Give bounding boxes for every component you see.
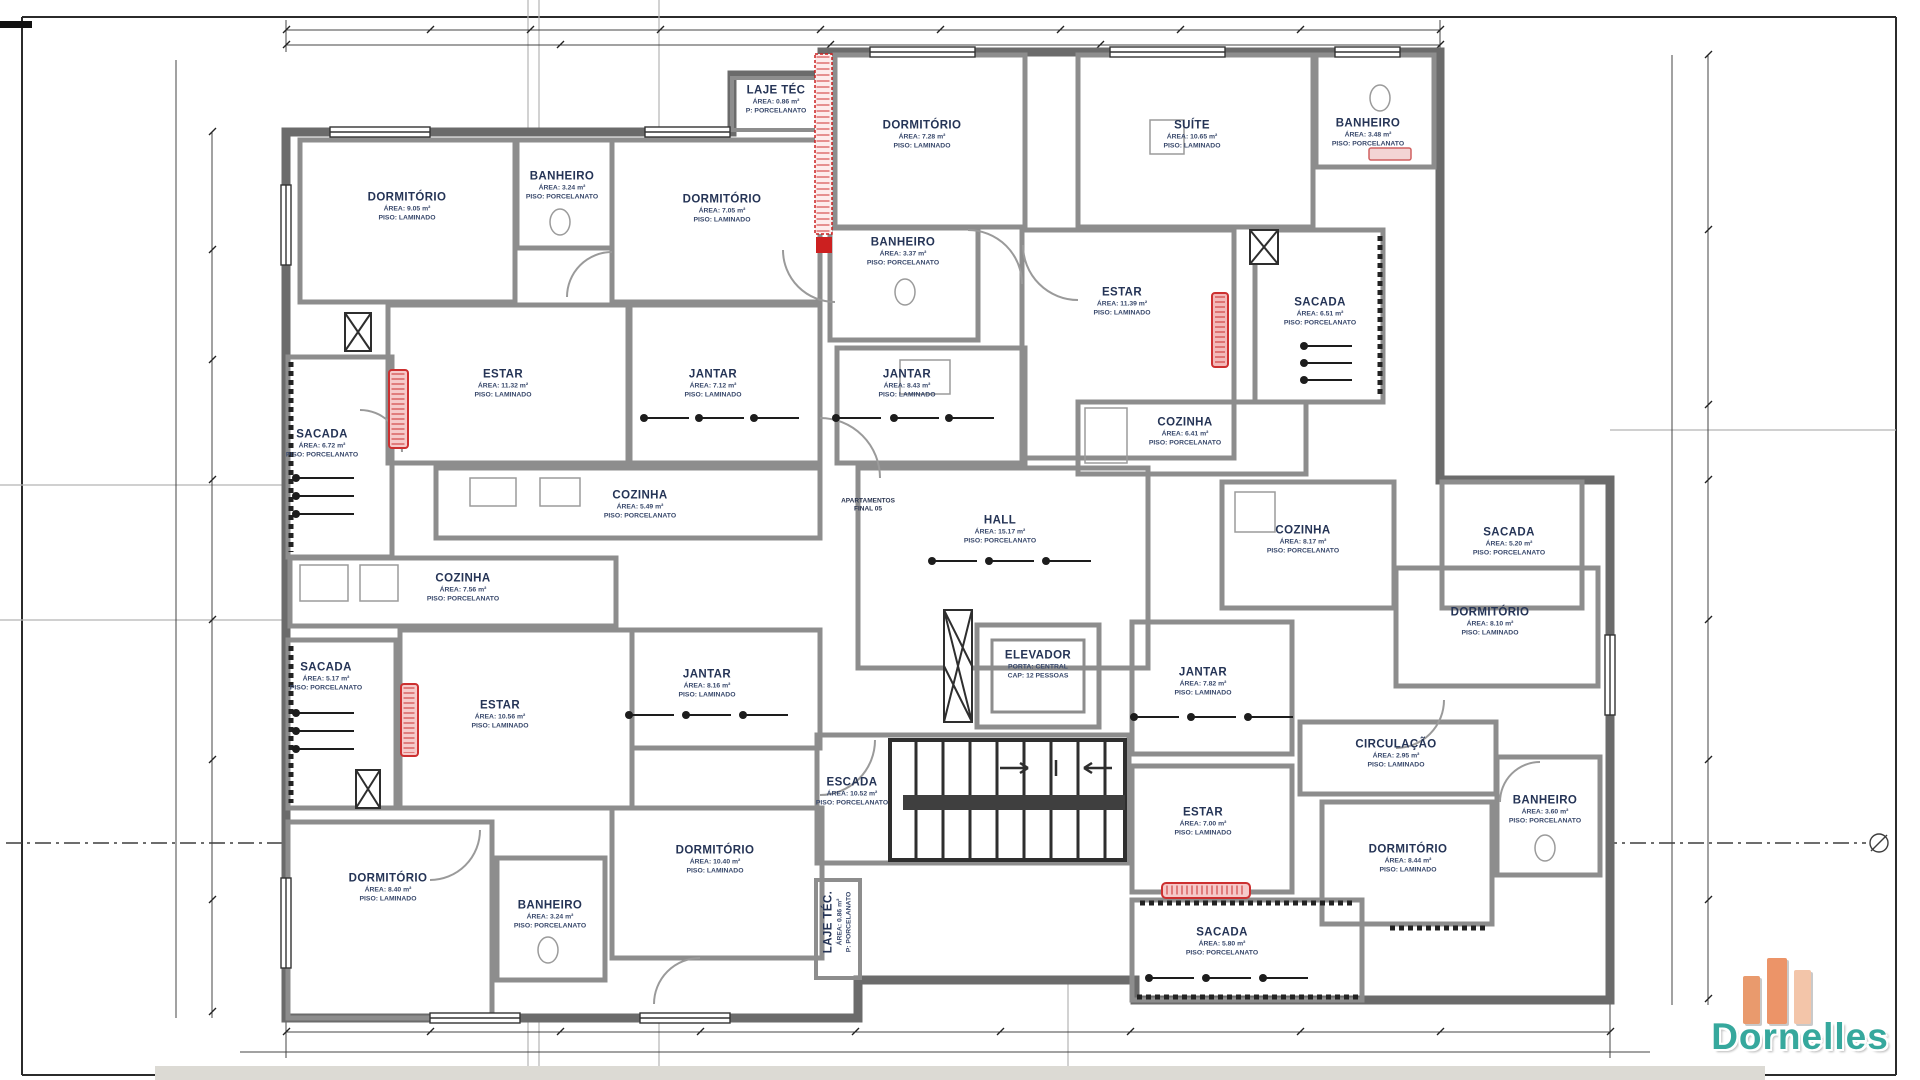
room-name: DORMITÓRIO <box>1369 843 1448 858</box>
room-area: ÁREA: 15.17 m² <box>964 529 1036 538</box>
room-label: SACADAÁREA: 5.80 m²PISO: PORCELANATO <box>1186 926 1258 959</box>
room-area: ÁREA: 8.16 m² <box>678 683 735 692</box>
room-floor: PISO: LAMINADO <box>1451 629 1530 638</box>
room-area: ÁREA: 6.72 m² <box>286 443 358 452</box>
floor-plan-sheet: DORMITÓRIOÁREA: 9.05 m²PISO: LAMINADOBAN… <box>0 0 1920 1080</box>
room-label: ESTARÁREA: 11.39 m²PISO: LAMINADO <box>1093 286 1150 319</box>
apartment-annotation-line2: FINAL 05 <box>841 506 895 514</box>
company-logo: Dornelles <box>1695 948 1905 1063</box>
room-label: JANTARÁREA: 7.82 m²PISO: LAMINADO <box>1174 666 1231 699</box>
room-label: ESTARÁREA: 11.32 m²PISO: LAMINADO <box>474 368 531 401</box>
room-area: ÁREA: 3.24 m² <box>514 914 586 923</box>
room-floor: PISO: LAMINADO <box>349 895 428 904</box>
room-floor: PISO: PORCELANATO <box>1473 549 1545 558</box>
room-label: DORMITÓRIOÁREA: 7.28 m²PISO: LAMINADO <box>883 119 962 152</box>
room-name: SACADA <box>286 428 358 443</box>
room-floor: PISO: LAMINADO <box>1174 689 1231 698</box>
room-floor: PISO: PORCELANATO <box>964 537 1036 546</box>
room-label: BANHEIROÁREA: 3.60 m²PISO: PORCELANATO <box>1509 794 1581 827</box>
room-name: DORMITÓRIO <box>349 872 428 887</box>
room-floor: P: PORCELANATO <box>746 107 807 116</box>
room-area: ÁREA: 5.49 m² <box>604 504 676 513</box>
room-name: HALL <box>964 514 1036 529</box>
room-name: SACADA <box>290 661 362 676</box>
room-area: ÁREA: 7.00 m² <box>1174 821 1231 830</box>
room-label: DORMITÓRIOÁREA: 8.44 m²PISO: LAMINADO <box>1369 843 1448 876</box>
floor-plan-linework <box>0 0 1920 1080</box>
room-name: SACADA <box>1473 526 1545 541</box>
room-floor: PISO: LAMINADO <box>1369 866 1448 875</box>
room-label: DORMITÓRIOÁREA: 9.05 m²PISO: LAMINADO <box>368 191 447 224</box>
room-floor: PISO: LAMINADO <box>1174 829 1231 838</box>
room-floor: PISO: PORCELANATO <box>1509 817 1581 826</box>
room-label: JANTARÁREA: 8.43 m²PISO: LAMINADO <box>878 368 935 401</box>
room-label: ELEVADORPORTA: CENTRALCAP: 12 PESSOAS <box>1005 649 1071 682</box>
room-area: ÁREA: 5.20 m² <box>1473 541 1545 550</box>
room-name: DORMITÓRIO <box>676 844 755 859</box>
room-floor: PISO: PORCELANATO <box>1267 547 1339 556</box>
room-label: DORMITÓRIOÁREA: 7.05 m²PISO: LAMINADO <box>683 193 762 226</box>
room-area: ÁREA: 3.24 m² <box>526 185 598 194</box>
room-name: COZINHA <box>1149 416 1221 431</box>
room-label: DORMITÓRIOÁREA: 8.40 m²PISO: LAMINADO <box>349 872 428 905</box>
room-name: COZINHA <box>427 572 499 587</box>
room-floor: PISO: LAMINADO <box>368 214 447 223</box>
room-area: ÁREA: 3.60 m² <box>1509 809 1581 818</box>
room-label: DORMITÓRIOÁREA: 8.10 m²PISO: LAMINADO <box>1451 606 1530 639</box>
room-area: ÁREA: 10.65 m² <box>1163 134 1220 143</box>
room-name: LAJE TÉC. <box>822 891 837 953</box>
room-name: BANHEIRO <box>526 170 598 185</box>
room-label: SACADAÁREA: 6.51 m²PISO: PORCELANATO <box>1284 296 1356 329</box>
room-floor: PISO: PORCELANATO <box>1149 439 1221 448</box>
frame-corner-mark <box>0 21 32 28</box>
room-floor: PISO: PORCELANATO <box>514 922 586 931</box>
room-name: SUÍTE <box>1163 119 1220 134</box>
room-floor: PISO: LAMINADO <box>684 391 741 400</box>
room-area: ÁREA: 8.40 m² <box>349 887 428 896</box>
room-area: ÁREA: 7.82 m² <box>1174 681 1231 690</box>
room-name: JANTAR <box>1174 666 1231 681</box>
room-name: ESTAR <box>474 368 531 383</box>
room-floor: PISO: LAMINADO <box>474 391 531 400</box>
room-area: ÁREA: 7.05 m² <box>683 208 762 217</box>
room-label: HALLÁREA: 15.17 m²PISO: PORCELANATO <box>964 514 1036 547</box>
room-name: ESTAR <box>1093 286 1150 301</box>
room-name: SACADA <box>1284 296 1356 311</box>
room-floor: CAP: 12 PESSOAS <box>1005 672 1071 681</box>
room-label: COZINHAÁREA: 6.41 m²PISO: PORCELANATO <box>1149 416 1221 449</box>
room-area: ÁREA: 3.48 m² <box>1332 132 1404 141</box>
room-label: BANHEIROÁREA: 3.24 m²PISO: PORCELANATO <box>526 170 598 203</box>
room-name: BANHEIRO <box>867 236 939 251</box>
room-floor: PISO: PORCELANATO <box>1186 949 1258 958</box>
room-floor: PISO: PORCELANATO <box>604 512 676 521</box>
room-label: BANHEIROÁREA: 3.48 m²PISO: PORCELANATO <box>1332 117 1404 150</box>
room-floor: PISO: PORCELANATO <box>286 451 358 460</box>
room-name: JANTAR <box>878 368 935 383</box>
apartment-annotation-line1: APARTAMENTOS <box>841 498 895 506</box>
room-area: ÁREA: 11.39 m² <box>1093 301 1150 310</box>
room-name: BANHEIRO <box>1332 117 1404 132</box>
room-label: ESTARÁREA: 10.56 m²PISO: LAMINADO <box>471 699 528 732</box>
room-area: ÁREA: 10.52 m² <box>816 791 888 800</box>
room-floor: PISO: PORCELANATO <box>1332 140 1404 149</box>
room-area: ÁREA: 2.95 m² <box>1355 753 1436 762</box>
room-floor: PISO: LAMINADO <box>883 142 962 151</box>
room-label: CIRCULAÇÃOÁREA: 2.95 m²PISO: LAMINADO <box>1355 738 1436 771</box>
room-area: ÁREA: 5.80 m² <box>1186 941 1258 950</box>
room-floor: PISO: PORCELANATO <box>427 595 499 604</box>
room-floor: PISO: PORCELANATO <box>526 193 598 202</box>
room-area: ÁREA: 8.10 m² <box>1451 621 1530 630</box>
room-area: ÁREA: 8.44 m² <box>1369 858 1448 867</box>
room-label: COZINHAÁREA: 5.49 m²PISO: PORCELANATO <box>604 489 676 522</box>
room-floor: PISO: LAMINADO <box>676 867 755 876</box>
room-label: ESCADAÁREA: 10.52 m²PISO: PORCELANATO <box>816 776 888 809</box>
room-floor: PISO: LAMINADO <box>1355 761 1436 770</box>
room-name: LAJE TÉC <box>746 84 807 99</box>
room-name: JANTAR <box>684 368 741 383</box>
room-name: DORMITÓRIO <box>368 191 447 206</box>
room-label: COZINHAÁREA: 7.56 m²PISO: PORCELANATO <box>427 572 499 605</box>
apartment-annotation: APARTAMENTOS FINAL 05 <box>841 498 895 515</box>
room-label: SUÍTEÁREA: 10.65 m²PISO: LAMINADO <box>1163 119 1220 152</box>
room-area: ÁREA: 6.41 m² <box>1149 431 1221 440</box>
room-name: DORMITÓRIO <box>883 119 962 134</box>
room-area: ÁREA: 10.56 m² <box>471 714 528 723</box>
room-floor: PISO: LAMINADO <box>1093 309 1150 318</box>
room-area: ÁREA: 7.12 m² <box>684 383 741 392</box>
room-area: ÁREA: 8.43 m² <box>878 383 935 392</box>
room-label: SACADAÁREA: 5.17 m²PISO: PORCELANATO <box>290 661 362 694</box>
room-name: ESTAR <box>1174 806 1231 821</box>
room-area: ÁREA: 5.17 m² <box>290 676 362 685</box>
room-floor: PISO: PORCELANATO <box>867 259 939 268</box>
room-floor: PISO: LAMINADO <box>878 391 935 400</box>
room-name: COZINHA <box>604 489 676 504</box>
room-name: ESTAR <box>471 699 528 714</box>
room-area: ÁREA: 9.05 m² <box>368 206 447 215</box>
room-area: ÁREA: 7.56 m² <box>427 587 499 596</box>
room-label: LAJE TÉCÁREA: 0.86 m²P: PORCELANATO <box>746 84 807 117</box>
room-area: ÁREA: 3.37 m² <box>867 251 939 260</box>
room-label: BANHEIROÁREA: 3.24 m²PISO: PORCELANATO <box>514 899 586 932</box>
room-area: ÁREA: 10.40 m² <box>676 859 755 868</box>
room-name: SACADA <box>1186 926 1258 941</box>
room-label: DORMITÓRIOÁREA: 10.40 m²PISO: LAMINADO <box>676 844 755 877</box>
room-name: BANHEIRO <box>514 899 586 914</box>
room-label: JANTARÁREA: 7.12 m²PISO: LAMINADO <box>684 368 741 401</box>
room-floor: PISO: LAMINADO <box>471 722 528 731</box>
sheet-bottom-band <box>155 1066 1765 1080</box>
room-name: DORMITÓRIO <box>683 193 762 208</box>
room-area: PORTA: CENTRAL <box>1005 664 1071 673</box>
room-area: ÁREA: 8.17 m² <box>1267 539 1339 548</box>
room-floor: PISO: PORCELANATO <box>816 799 888 808</box>
room-floor: PISO: LAMINADO <box>678 691 735 700</box>
room-name: CIRCULAÇÃO <box>1355 738 1436 753</box>
room-name: ESCADA <box>816 776 888 791</box>
room-name: BANHEIRO <box>1509 794 1581 809</box>
room-area: ÁREA: 6.51 m² <box>1284 311 1356 320</box>
room-label: COZINHAÁREA: 8.17 m²PISO: PORCELANATO <box>1267 524 1339 557</box>
room-area: ÁREA: 7.28 m² <box>883 134 962 143</box>
room-name: COZINHA <box>1267 524 1339 539</box>
red-shaft-square <box>816 237 832 253</box>
room-label: JANTARÁREA: 8.16 m²PISO: LAMINADO <box>678 668 735 701</box>
room-floor: PISO: LAMINADO <box>1163 142 1220 151</box>
room-name: JANTAR <box>678 668 735 683</box>
room-label: SACADAÁREA: 5.20 m²PISO: PORCELANATO <box>1473 526 1545 559</box>
room-floor: PISO: PORCELANATO <box>1284 319 1356 328</box>
room-floor: PISO: LAMINADO <box>683 216 762 225</box>
room-area: ÁREA: 0.86 m² <box>837 891 846 953</box>
room-area: ÁREA: 11.32 m² <box>474 383 531 392</box>
room-label: ESTARÁREA: 7.00 m²PISO: LAMINADO <box>1174 806 1231 839</box>
room-name: DORMITÓRIO <box>1451 606 1530 621</box>
room-label: SACADAÁREA: 6.72 m²PISO: PORCELANATO <box>286 428 358 461</box>
room-label: BANHEIROÁREA: 3.37 m²PISO: PORCELANATO <box>867 236 939 269</box>
room-name: ELEVADOR <box>1005 649 1071 664</box>
room-floor: PISO: PORCELANATO <box>290 684 362 693</box>
room-area: ÁREA: 0.86 m² <box>746 99 807 108</box>
room-floor: P: PORCELANATO <box>845 891 854 953</box>
room-label: LAJE TÉC.ÁREA: 0.86 m²P: PORCELANATO <box>822 891 855 953</box>
logo-building-bar-icon <box>1767 958 1787 1024</box>
logo-text: Dornelles <box>1695 1016 1905 1058</box>
